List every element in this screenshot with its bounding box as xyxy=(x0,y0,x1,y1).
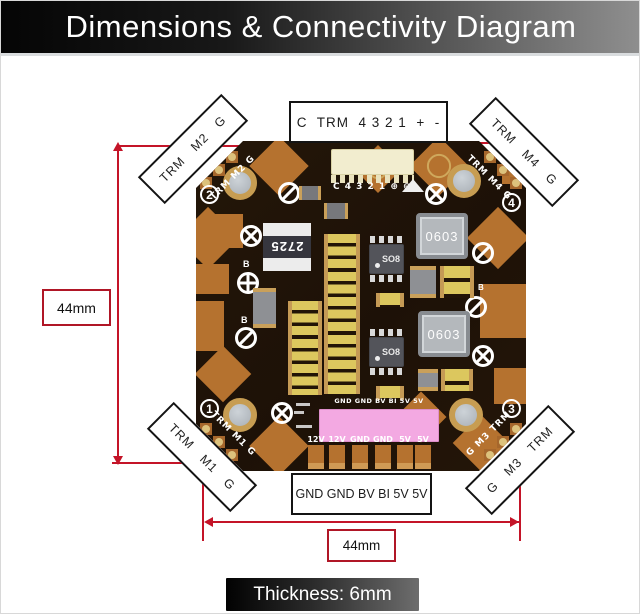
header-bar: Dimensions & Connectivity Diagram xyxy=(1,1,640,56)
bottom-connector-callout: GND GND BV BI 5V 5V xyxy=(291,473,432,515)
component-2725: 2725 xyxy=(263,223,311,271)
page-title: Dimensions & Connectivity Diagram xyxy=(66,9,577,45)
diagram-page: Dimensions & Connectivity Diagram xyxy=(0,0,640,614)
capacitor xyxy=(418,369,438,391)
inductor-0603: 0603 xyxy=(418,311,470,357)
solder-pad xyxy=(329,445,345,469)
tag-word: G xyxy=(543,171,560,188)
connector-silk-label: C 4 3 2 1 ⊕ ⊖ xyxy=(333,182,412,192)
solder-pad xyxy=(352,445,368,469)
pin1-dot xyxy=(375,356,380,361)
screw-cross-icon xyxy=(271,402,293,424)
bottom-silk-row: GND GND BV BI 5V 5V xyxy=(320,397,438,405)
capacitor xyxy=(410,266,436,298)
ffc-connector xyxy=(331,149,414,175)
tag-word: TRM xyxy=(157,154,188,185)
tag-word: G xyxy=(212,113,229,130)
tag-word: TRM xyxy=(525,424,556,455)
capacitor xyxy=(376,293,404,307)
solder-pad xyxy=(415,445,431,469)
inductor-label: 0603 xyxy=(428,327,461,342)
capacitor xyxy=(253,288,276,328)
chip-pins xyxy=(370,275,403,282)
tiny-silk-mark xyxy=(296,425,312,428)
b-marker: B xyxy=(478,283,484,292)
height-dimension-value: 44mm xyxy=(42,289,111,326)
chip-pins xyxy=(370,329,403,336)
arrow-left-icon xyxy=(204,517,213,527)
screw-slash-icon xyxy=(235,327,257,349)
so8-chip-label: SO8 xyxy=(382,347,400,357)
pad-label-gnd: GND xyxy=(350,435,370,444)
inductor-0603: 0603 xyxy=(416,213,468,259)
arrow-right-icon xyxy=(510,517,519,527)
pcb-board: 2 4 1 3 TRM M2 G TRM M4 G TRM M1 G G M3 … xyxy=(196,141,526,471)
screw-cross-icon xyxy=(240,225,262,247)
width-dimension-line xyxy=(210,521,519,523)
pad-label-12v: 12V xyxy=(307,435,324,444)
chip-pins xyxy=(370,368,403,375)
capacitor xyxy=(324,203,348,219)
corner-pad xyxy=(484,151,496,163)
b-marker: B xyxy=(243,259,250,269)
tag-word: G xyxy=(484,479,501,496)
polarity-triangle-icon xyxy=(402,179,424,192)
screw-cross-icon xyxy=(472,345,494,367)
component-2725-label: 2725 xyxy=(263,236,311,258)
solder-pad xyxy=(308,445,324,469)
capacitor xyxy=(440,266,474,298)
pad-label-5v: 5V xyxy=(417,435,429,444)
capacitor-bank xyxy=(324,234,360,394)
tiny-silk-mark xyxy=(296,403,310,406)
tag-word: M3 xyxy=(501,455,525,479)
thickness-badge: Thickness: 6mm xyxy=(226,578,419,611)
tag-word: TRM xyxy=(166,421,197,452)
pin1-dot xyxy=(375,263,380,268)
screw-slash-icon xyxy=(278,182,300,204)
height-dimension-line xyxy=(117,148,119,462)
corner-pad xyxy=(510,177,522,189)
capacitor-bank xyxy=(288,301,322,395)
corner-pad xyxy=(497,164,509,176)
copper-pad xyxy=(480,284,526,338)
width-dimension-value: 44mm xyxy=(327,529,396,562)
screw-cross-icon xyxy=(425,183,447,205)
chip-pins xyxy=(370,236,403,243)
pad-label-12v: 12V xyxy=(328,435,345,444)
so8-chip-label: SO8 xyxy=(382,254,400,264)
tiny-silk-mark xyxy=(294,411,304,414)
corner-pad xyxy=(213,164,225,176)
copper-diamond-pad xyxy=(195,346,252,403)
b-marker: B xyxy=(241,315,248,325)
pad-label-5v: 5V xyxy=(399,435,411,444)
tag-word: M2 xyxy=(188,130,212,154)
pad-label-gnd: GND xyxy=(373,435,393,444)
screw-slash-icon xyxy=(472,242,494,264)
mounting-hole xyxy=(449,398,483,432)
copper-pad xyxy=(196,264,229,294)
copper-pad xyxy=(196,301,224,351)
inductor-label: 0603 xyxy=(426,229,459,244)
tag-word: TRM xyxy=(488,116,519,147)
so8-chip: SO8 xyxy=(369,244,404,274)
capacitor xyxy=(299,186,321,200)
copper-pad xyxy=(201,214,243,248)
capacitor xyxy=(441,369,473,391)
tag-word: M4 xyxy=(519,147,543,171)
tag-word: G xyxy=(221,476,238,493)
corner-pad xyxy=(226,151,238,163)
solder-pad xyxy=(397,445,413,469)
tag-word: M1 xyxy=(197,452,221,476)
solder-pad xyxy=(375,445,391,469)
top-connector-callout: C TRM 4 3 2 1 + - xyxy=(289,101,448,143)
so8-chip: SO8 xyxy=(369,337,404,367)
